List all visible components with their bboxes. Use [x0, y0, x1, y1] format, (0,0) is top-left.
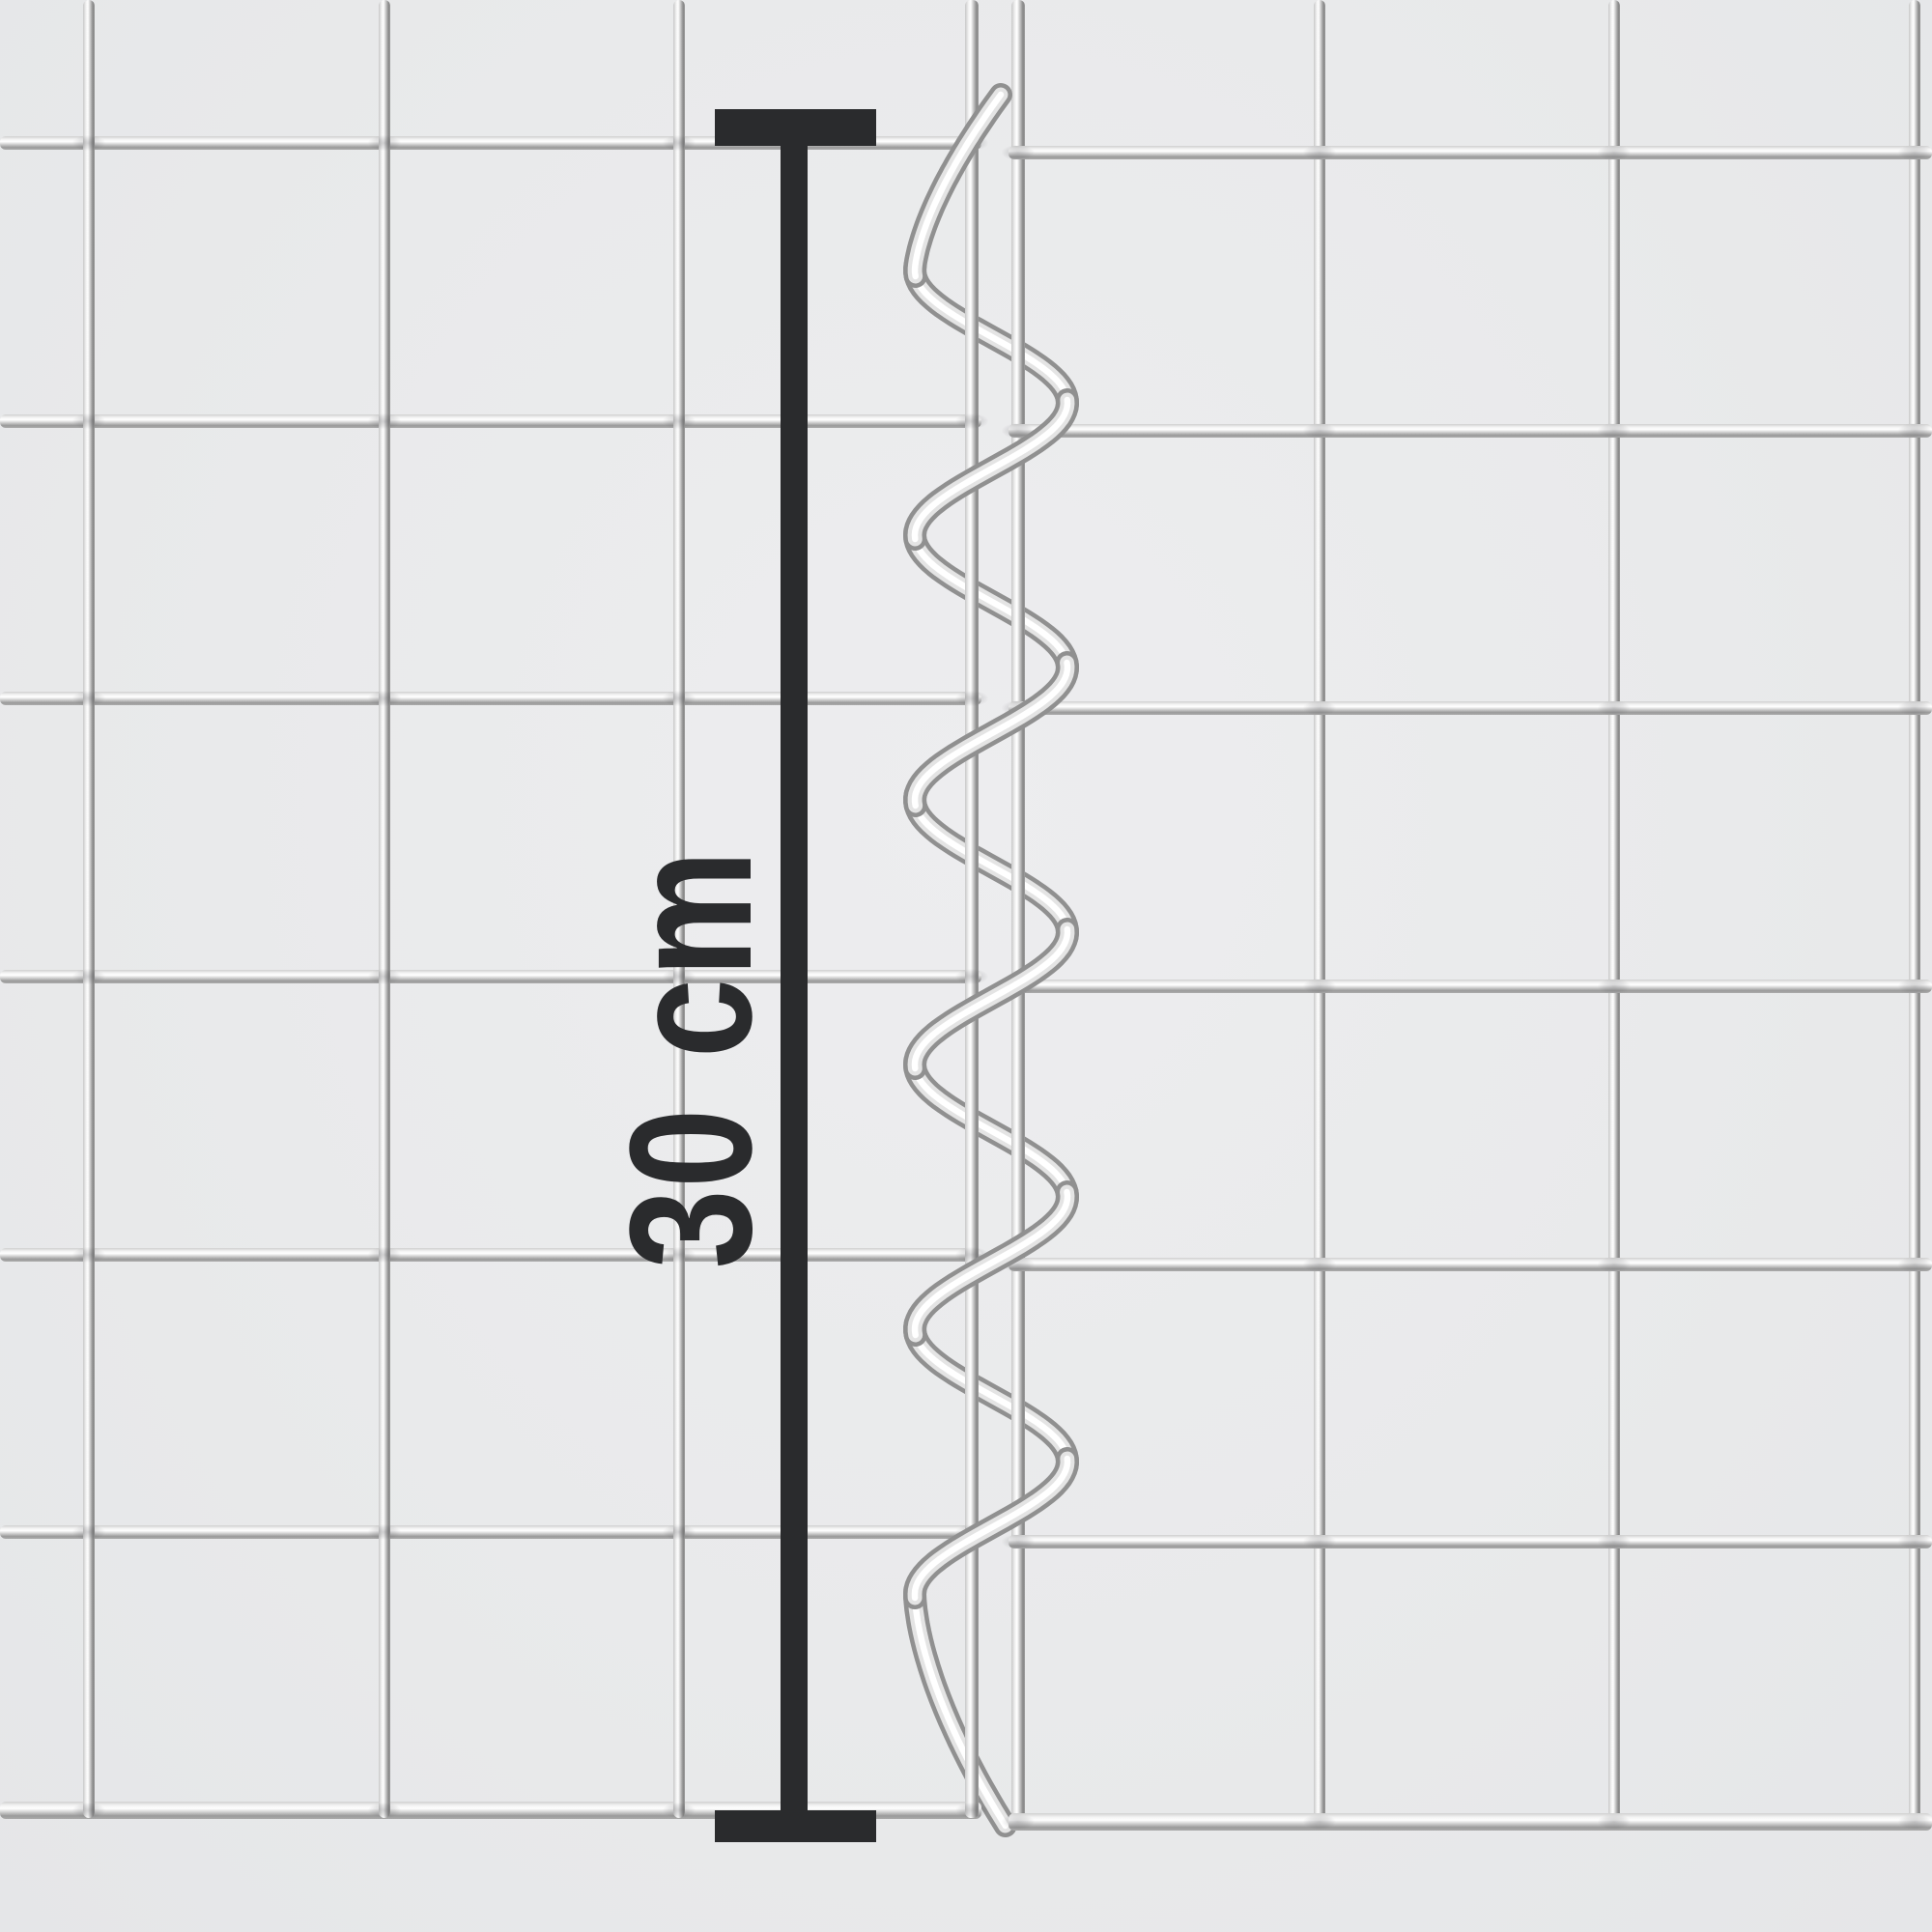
mesh-wire-horizontal — [1009, 146, 1932, 159]
mesh-wire-vertical — [1608, 0, 1620, 1831]
spiral-tube-segment — [915, 1061, 1067, 1200]
spiral-tube-segment — [915, 265, 1067, 408]
spiral-tube-segment — [915, 663, 1067, 806]
mesh-wire-vertical — [1314, 0, 1325, 1831]
spiral-tube-segment — [915, 1323, 1067, 1466]
spiral-tube-segment — [915, 95, 1001, 276]
spiral-tube-segment — [915, 265, 1067, 408]
spiral-tube-segment — [915, 1323, 1067, 1466]
mesh-wire-vertical — [379, 0, 390, 1818]
spiral-tube-segment — [915, 929, 1067, 1068]
mesh-wire-horizontal — [1009, 701, 1932, 715]
mesh-wire-vertical — [965, 0, 979, 1818]
spiral-tube-segment — [915, 265, 1067, 408]
spiral-tube-segment — [915, 1590, 1006, 1826]
spiral-tube-segment — [915, 95, 1001, 276]
mesh-wire-horizontal — [1009, 1813, 1932, 1831]
mesh-wire-vertical — [1909, 0, 1920, 1831]
mesh-wire-horizontal — [1009, 1535, 1932, 1548]
spiral-tube-segment — [915, 531, 1067, 670]
dimension-label: 30 cm — [609, 872, 773, 1244]
mesh-wire-horizontal — [0, 414, 981, 428]
mesh-wire-horizontal — [0, 970, 981, 983]
spiral-tube-segment — [915, 1061, 1067, 1200]
spiral-tube-segment — [915, 794, 1067, 937]
spiral-tube-segment — [915, 794, 1067, 937]
mesh-wire-horizontal — [0, 1248, 981, 1262]
spiral-tube-segment — [915, 95, 1001, 276]
mesh-wire-vertical — [83, 0, 95, 1818]
mesh-wire-horizontal — [0, 1525, 981, 1539]
spiral-tube-segment — [915, 1590, 1006, 1826]
mesh-wire-horizontal — [1009, 424, 1932, 438]
product-image-stage: 30 cm — [0, 0, 1932, 1932]
spiral-tube-segment — [915, 663, 1067, 806]
spiral-tube-segment — [915, 531, 1067, 670]
mesh-wire-vertical — [1011, 0, 1025, 1831]
dimension-bar-top-cap — [715, 109, 876, 146]
spiral-tube-segment — [915, 1061, 1067, 1200]
mesh-wire-horizontal — [0, 692, 981, 705]
spiral-tube-segment — [915, 929, 1067, 1068]
spiral-tube-segment — [915, 531, 1067, 670]
spiral-tube-segment — [915, 663, 1067, 806]
mesh-wire-horizontal — [1009, 1258, 1932, 1271]
spiral-tube-segment — [915, 794, 1067, 937]
spiral-tube-segment — [915, 1590, 1006, 1826]
spiral-tube-segment — [915, 1323, 1067, 1466]
dimension-bar-bottom-cap — [715, 1810, 876, 1842]
spiral-tube-segment — [915, 929, 1067, 1068]
mesh-wire-horizontal — [1009, 980, 1932, 993]
